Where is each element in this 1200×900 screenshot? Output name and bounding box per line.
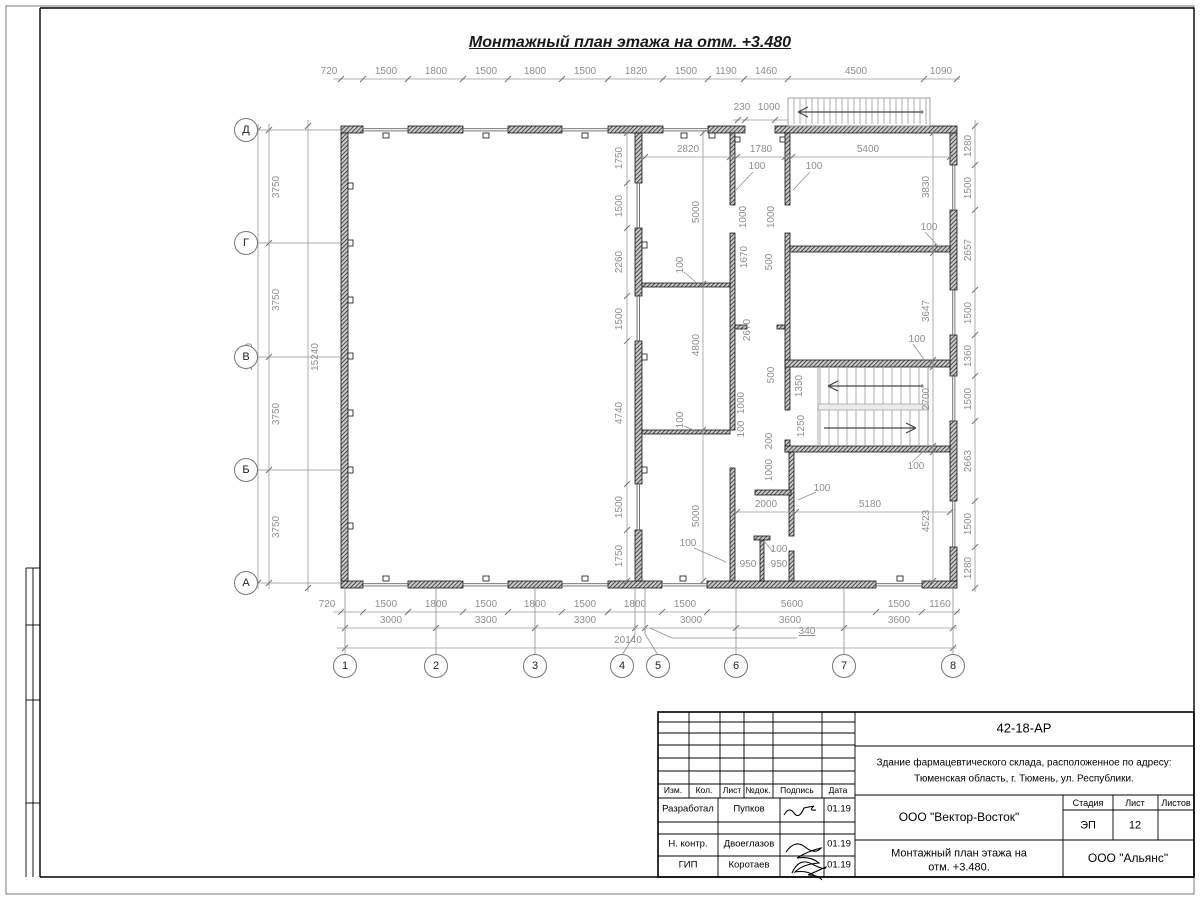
titleblock-date: 01.19 [827, 805, 851, 816]
dimension-label: 1670 [740, 246, 750, 268]
dimension-label: 1500 [675, 67, 697, 77]
titleblock-header-cell: Подпись [780, 786, 814, 796]
dimension-label: 100 [737, 421, 747, 438]
sheet-value: 12 [1129, 820, 1141, 833]
dimension-label: 1500 [615, 195, 625, 217]
dimension-label: 5600 [781, 600, 803, 610]
titleblock-date: 01.19 [827, 861, 851, 872]
dimension-label: 950 [740, 560, 757, 570]
dimension-label: 1500 [615, 496, 625, 518]
dimension-label: 1090 [930, 67, 952, 77]
dimension-label: 2657 [964, 239, 974, 261]
axis-bubble-row: Б [234, 458, 258, 482]
dimension-label: 1190 [715, 67, 737, 77]
page-title: Монтажный план этажа на отм. +3.480 [469, 34, 791, 52]
dimension-label: 100 [814, 484, 831, 494]
dimension-label: 2663 [964, 450, 974, 472]
axis-bubble-column: 3 [523, 654, 547, 678]
dimension-label: 2670 [743, 319, 753, 341]
dimension-label: 1280 [964, 135, 974, 157]
project-address-2: Тюменская область, г. Тюмень, ул. Респуб… [914, 773, 1134, 785]
titleblock-header-cell: Лист [723, 786, 741, 796]
dimension-label: 3750 [272, 289, 282, 311]
dimension-label: 100 [676, 412, 686, 429]
dimension-label: 1800 [524, 67, 546, 77]
drawing-sheet: Монтажный план этажа на отм. +3.480 7201… [0, 0, 1200, 900]
axis-bubble-column: 1 [333, 654, 357, 678]
dimension-label: 3000 [380, 616, 402, 626]
axis-bubble-row: В [234, 345, 258, 369]
dimension-label: 1360 [964, 345, 974, 367]
dimension-label: 2260 [615, 251, 625, 273]
dimension-label: 100 [909, 335, 926, 345]
dimension-label: 1800 [425, 67, 447, 77]
dimension-label: 1500 [964, 177, 974, 199]
dimension-label: 1250 [797, 415, 807, 437]
walls-group [341, 126, 957, 588]
dimension-label: 2700 [922, 388, 932, 410]
axis-bubble-row: А [234, 571, 258, 595]
dimension-label: 3750 [272, 176, 282, 198]
axis-bubble-column: 8 [941, 654, 965, 678]
dimension-label: 1500 [888, 600, 910, 610]
axis-bubble-row: Д [234, 118, 258, 142]
dimension-label: 3000 [680, 616, 702, 626]
dimension-label: 100 [680, 539, 697, 549]
axis-bubble-column: 2 [424, 654, 448, 678]
dimension-label: 1820 [625, 67, 647, 77]
dimension-label: 1500 [964, 302, 974, 324]
dimension-label: 1500 [964, 513, 974, 535]
dimension-label: 5000 [692, 505, 702, 527]
dimension-label: 3830 [922, 176, 932, 198]
dimension-label: 1000 [765, 459, 775, 481]
titleblock-name: Двоеглазов [724, 840, 775, 851]
dimension-label: 20140 [614, 636, 642, 646]
titleblock-role: Н. контр. [668, 840, 707, 851]
titleblock-name: Коротаев [728, 861, 769, 872]
axis-bubble-column: 4 [610, 654, 634, 678]
project-address-1: Здание фармацевтического склада, располо… [876, 757, 1171, 769]
dimension-label: 720 [321, 67, 338, 77]
dimension-label: 1000 [767, 206, 777, 228]
dimension-label: 200 [765, 433, 775, 450]
dimension-label: 720 [319, 600, 336, 610]
signature-marks [784, 806, 826, 880]
dimension-label: 1000 [737, 392, 747, 414]
dimension-label: 5400 [857, 145, 879, 155]
dimension-label: 1350 [795, 375, 805, 397]
dimension-label: 1750 [615, 147, 625, 169]
dimension-label: 1500 [674, 600, 696, 610]
axis-bubble-column: 6 [724, 654, 748, 678]
dimension-label: 1500 [574, 600, 596, 610]
dimension-label: 1500 [375, 600, 397, 610]
dimension-label: 1500 [475, 67, 497, 77]
dimension-label: 100 [806, 162, 823, 172]
dimension-label: 3600 [779, 616, 801, 626]
doc-number: 42-18-АР [997, 722, 1052, 737]
dimension-label: 1000 [739, 206, 749, 228]
dimension-label: 3300 [475, 616, 497, 626]
windows-group [363, 129, 955, 586]
org-name: ООО "Вектор-Восток" [899, 811, 1020, 825]
dimension-label: 5180 [859, 500, 881, 510]
dimension-label: 1500 [475, 600, 497, 610]
dimension-label: 3300 [574, 616, 596, 626]
dimension-label: 4500 [845, 67, 867, 77]
axis-bubble-row: Г [234, 231, 258, 255]
titleblock-header-cell: Изм. [664, 786, 682, 796]
dimension-label: 1750 [615, 545, 625, 567]
dimension-label: 1500 [375, 67, 397, 77]
dimension-label: 950 [771, 560, 788, 570]
dimension-label: 1800 [425, 600, 447, 610]
dimension-label: 3750 [272, 516, 282, 538]
dimension-label: 100 [749, 162, 766, 172]
titleblock-date: 01.19 [827, 840, 851, 851]
client-name: ООО "Альянс" [1088, 852, 1168, 866]
dimension-label: 3750 [272, 403, 282, 425]
dimension-label: 1160 [929, 600, 951, 610]
axis-bubble-column: 7 [832, 654, 856, 678]
dimension-label: 2000 [755, 500, 777, 510]
titleblock-header-cell: Кол. [696, 786, 713, 796]
titleblock-header-cell: №док. [746, 786, 771, 796]
dimension-label: 500 [765, 254, 775, 271]
dimension-label: 1500 [964, 388, 974, 410]
drawing-title-2: отм. +3.480. [928, 862, 990, 875]
axis-bubble-column: 5 [646, 654, 670, 678]
dimension-label: 4800 [692, 334, 702, 356]
dimension-label: 1500 [574, 67, 596, 77]
dimension-label: 230 [734, 103, 751, 113]
titleblock-header-cell: Дата [829, 786, 848, 796]
dimension-label: 3600 [888, 616, 910, 626]
dimension-label: 1000 [758, 103, 780, 113]
dimension-label: 100 [676, 257, 686, 274]
dimension-label: 340 [799, 627, 816, 637]
dimension-label: 1800 [624, 600, 646, 610]
titleblock-role: ГИП [679, 861, 698, 872]
titleblock-name: Пупков [733, 805, 764, 816]
dimension-label: 100 [921, 223, 938, 233]
stage-value: ЭП [1080, 820, 1096, 833]
dimension-label: 5000 [692, 201, 702, 223]
dimension-label: 1280 [964, 557, 974, 579]
dimension-label: 1780 [750, 145, 772, 155]
dimension-label: 1460 [755, 67, 777, 77]
dimension-label: 100 [771, 545, 788, 555]
sheets-label: Листов [1161, 798, 1190, 808]
dimension-label: 1800 [524, 600, 546, 610]
titleblock-role: Разработал [662, 805, 714, 816]
drawing-title-1: Монтажный план этажа на [891, 848, 1027, 861]
dimension-label: 2820 [677, 145, 699, 155]
dimension-label: 100 [908, 462, 925, 472]
dimension-label: 500 [767, 367, 777, 384]
dimension-label: 3647 [922, 300, 932, 322]
stage-label: Стадия [1073, 798, 1104, 808]
dimension-label: 15240 [311, 343, 321, 371]
dimension-label: 4523 [922, 510, 932, 532]
sheet-label: Лист [1125, 798, 1145, 808]
dimension-label: 1500 [615, 308, 625, 330]
dimension-label: 4740 [615, 402, 625, 424]
